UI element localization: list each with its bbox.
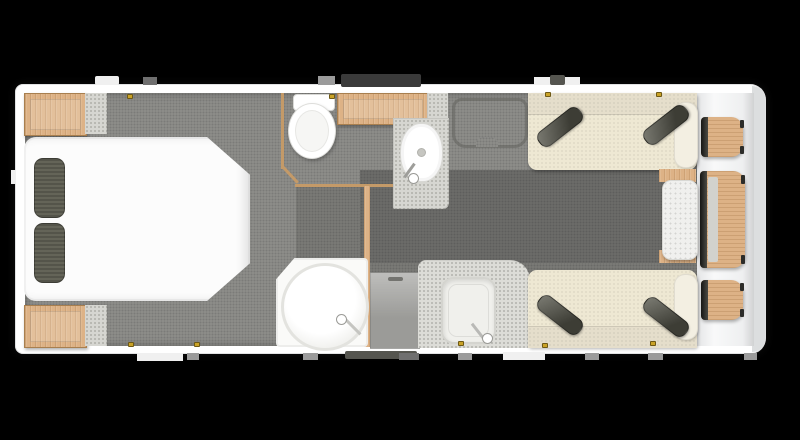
service-hatch — [585, 353, 599, 360]
window-catch — [128, 342, 134, 347]
front-chest — [662, 180, 698, 260]
wardrobe-door-panel — [30, 311, 81, 342]
service-hatch — [458, 353, 472, 360]
washroom-wall-left — [281, 93, 284, 169]
basin-drain — [417, 148, 426, 157]
window-catch — [458, 341, 464, 346]
door-handle-exterior — [550, 75, 565, 85]
shelf-edge-band — [700, 171, 707, 268]
bed-pillow-bottom — [34, 223, 65, 283]
window-catch — [194, 342, 200, 347]
service-hatch — [503, 352, 545, 360]
washroom-wall-bottom — [295, 184, 399, 187]
service-hatch — [143, 77, 157, 85]
table-leaf-middle — [700, 171, 745, 268]
roof-vent-hatch — [95, 76, 119, 85]
bedside-shelf-top — [85, 93, 107, 134]
service-hatch — [648, 353, 663, 360]
shelf-clip — [741, 255, 745, 264]
bedside-shelf-bottom — [85, 305, 107, 346]
service-hatch — [744, 353, 757, 360]
vanity-counter-panel — [343, 99, 423, 119]
service-hatch — [303, 353, 318, 360]
kitchen-sink-bowl-line — [448, 284, 489, 337]
wardrobe-door-panel — [30, 99, 81, 130]
kitchen-tap-knob — [482, 333, 493, 344]
entrance-mat — [452, 98, 528, 148]
shelf-clip — [740, 146, 744, 154]
rear-wall-fitting — [11, 170, 16, 184]
basin-tap-knob — [408, 173, 419, 184]
locker-shelf-bottom — [701, 280, 743, 320]
shelf-clip — [741, 175, 745, 184]
service-hatch — [399, 353, 419, 360]
wardrobe-rear-bottom — [24, 305, 87, 348]
shelf-clip — [740, 120, 744, 128]
service-hatch — [318, 76, 335, 85]
fridge-handle — [388, 277, 403, 281]
fridge — [370, 272, 420, 349]
window-catch — [542, 343, 548, 348]
service-hatch — [137, 353, 183, 361]
table-speckle-strip — [708, 177, 718, 262]
entrance-mat-notch — [476, 137, 498, 147]
toilet-bowl — [288, 103, 336, 159]
wardrobe-rear-top — [24, 93, 87, 136]
floorplan-stage — [0, 0, 800, 440]
window-catch — [329, 94, 335, 99]
window-catch — [656, 92, 662, 97]
window-catch — [545, 92, 551, 97]
shelf-edge-band — [701, 280, 708, 320]
shelf-edge-band — [701, 117, 708, 157]
window-dark-panel — [341, 74, 421, 87]
shelf-clip — [740, 309, 744, 317]
window-catch — [650, 341, 656, 346]
window-catch — [127, 94, 133, 99]
locker-shelf-top — [701, 117, 743, 157]
shelf-clip — [740, 283, 744, 291]
bed-pillow-top — [34, 158, 65, 218]
shower-tray — [281, 263, 369, 351]
service-hatch — [187, 353, 199, 360]
toilet-seat-ring — [295, 110, 329, 152]
shower-door-handle — [336, 314, 347, 325]
